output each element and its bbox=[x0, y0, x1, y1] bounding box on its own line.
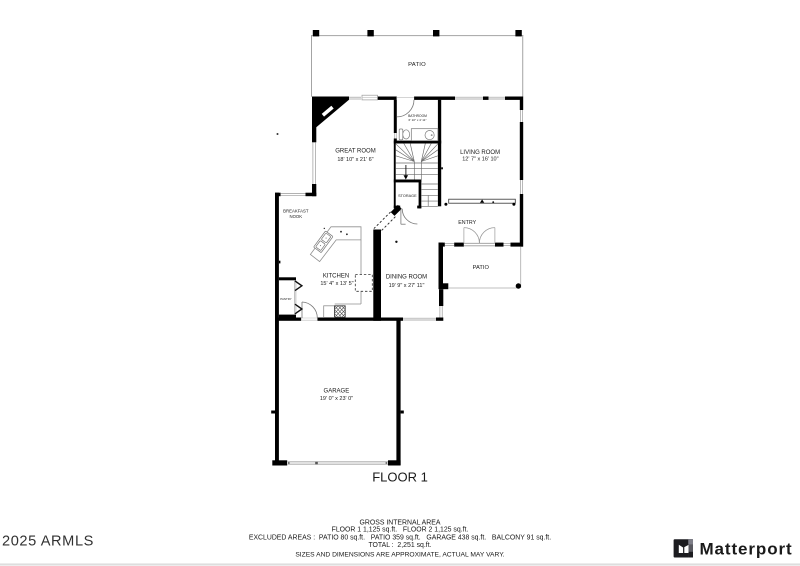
svg-text:BREAKFAST: BREAKFAST bbox=[283, 208, 309, 213]
svg-text:SIZES AND DIMENSIONS ARE APPRO: SIZES AND DIMENSIONS ARE APPROXIMATE, AC… bbox=[295, 551, 504, 558]
svg-text:GROSS INTERNAL AREA: GROSS INTERNAL AREA bbox=[360, 520, 441, 527]
svg-text:EXCLUDED AREAS : PATIO 80 sq.: EXCLUDED AREAS : PATIO 80 sq.ft. PATIO 3… bbox=[249, 535, 551, 542]
svg-text:18' 10" x 21' 6": 18' 10" x 21' 6" bbox=[337, 157, 373, 163]
svg-text:ENTRY: ENTRY bbox=[458, 220, 476, 226]
svg-text:FLOOR 1: FLOOR 1 bbox=[372, 470, 428, 485]
svg-text:PANTRY: PANTRY bbox=[280, 297, 292, 301]
svg-text:2025 ARMLS: 2025 ARMLS bbox=[2, 534, 94, 550]
svg-text:NOOK: NOOK bbox=[289, 214, 302, 219]
svg-text:TOTAL : 2,251 sq.ft.: TOTAL : 2,251 sq.ft. bbox=[368, 542, 431, 549]
svg-text:STORAGE: STORAGE bbox=[398, 194, 417, 198]
svg-text:LIVING ROOM: LIVING ROOM bbox=[460, 150, 500, 156]
svg-text:19' 9" x 27' 11": 19' 9" x 27' 11" bbox=[389, 283, 425, 289]
svg-text:DINING ROOM: DINING ROOM bbox=[386, 274, 427, 280]
svg-text:PATIO: PATIO bbox=[473, 265, 490, 271]
svg-text:KITCHEN: KITCHEN bbox=[323, 274, 349, 280]
svg-text:15' 4" x 13' 5": 15' 4" x 13' 5" bbox=[320, 281, 353, 287]
svg-text:FLOOR 1 1,125 sq.ft. FLOOR 2: FLOOR 1 1,125 sq.ft. FLOOR 2 1,125 sq.ft… bbox=[332, 527, 469, 534]
svg-text:19' 0" x 23' 0": 19' 0" x 23' 0" bbox=[320, 396, 353, 402]
svg-text:PATIO: PATIO bbox=[408, 62, 426, 68]
svg-text:GREAT ROOM: GREAT ROOM bbox=[335, 148, 375, 154]
svg-text:12' 7" x 16' 10": 12' 7" x 16' 10" bbox=[462, 157, 498, 163]
svg-text:6' 10" x 4' 11": 6' 10" x 4' 11" bbox=[409, 118, 427, 122]
svg-text:Matterport: Matterport bbox=[700, 540, 793, 559]
svg-text:GARAGE: GARAGE bbox=[324, 389, 350, 395]
